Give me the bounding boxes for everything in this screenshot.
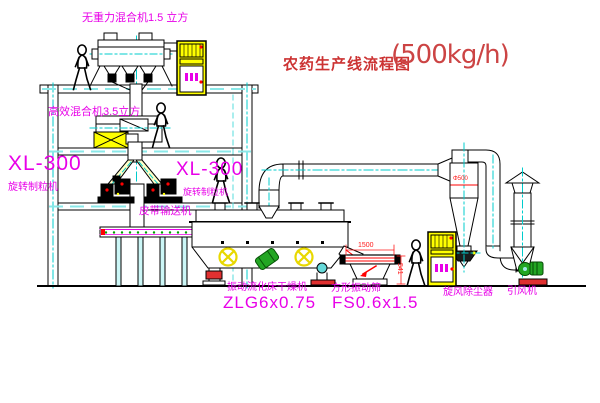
fluid-bed-dryer-machine [190, 203, 363, 285]
control-cabinet-top [177, 41, 206, 95]
label-sieve-model: FS0.6x1.5 [332, 294, 419, 311]
diagram-capacity: (500kg/h) [391, 40, 509, 70]
label-belt-conveyor: 皮带输送机 [139, 206, 192, 217]
label-mid-mixer: 高效混合机3.5立方 [48, 107, 140, 118]
label-dryer-name: 振动流化床干燥机 [227, 283, 307, 293]
control-knobs-icon [185, 73, 198, 81]
label-top-mixer: 无重力混合机1.5 立方 [82, 13, 188, 24]
dim-sieve-height: 541 [396, 263, 403, 275]
granulator-left-machine [98, 176, 134, 203]
label-granulator-right-model: XL-300 [176, 160, 243, 179]
granulator-right-machine [144, 179, 182, 203]
induced-draft-fan-machine [519, 262, 548, 285]
dim-sieve-length: 1500 [358, 242, 374, 249]
control-cabinet-right [428, 232, 456, 286]
label-granulator-left-name: 旋转制粒机 [8, 183, 58, 193]
screenshot-root: 农药生产线流程图 (500kg/h) 无重力混合机1.5 立方 高效混合机3.5… [0, 0, 600, 403]
worker-ground [408, 240, 425, 285]
label-granulator-right-name: 旋转制粒机 [183, 188, 228, 197]
worker-roof [74, 45, 91, 90]
label-induced-fan: 引风机 [507, 287, 537, 297]
label-dryer-model: ZLG6x0.75 [223, 294, 316, 311]
label-dust-collector: 旋风除尘器 [443, 288, 493, 298]
label-granulator-left-model: XL-300 [8, 153, 82, 174]
dim-cyclone-diameter: Φ500 [453, 176, 468, 182]
control-knobs-icon [435, 264, 448, 272]
